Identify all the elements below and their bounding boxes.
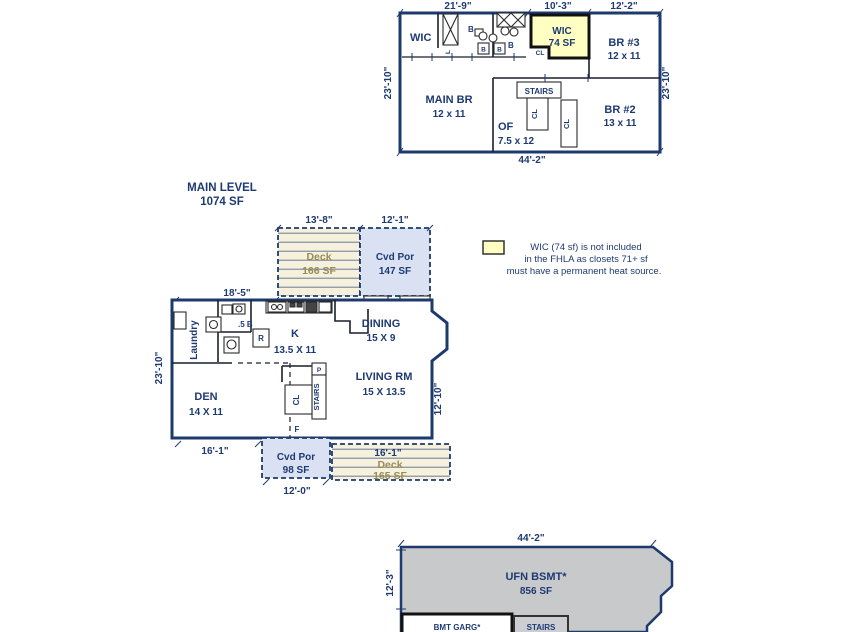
dining-name: DINING	[362, 318, 401, 330]
br3-dim: 12 x 11	[608, 51, 641, 62]
den-name: DEN	[194, 391, 217, 403]
linen-closet-label: L	[445, 50, 452, 54]
main-level-title-text: MAIN LEVEL	[187, 182, 257, 194]
upper-hall-cl-label: CL	[562, 119, 571, 129]
cvd-por-top-name: Cvd Por	[376, 252, 414, 263]
dining-dim: 15 X 9	[367, 333, 396, 344]
upper-wic-hall-label: WIC	[410, 32, 431, 44]
bsmt-garage-label: BMT GARG*	[434, 623, 482, 632]
br2-dim: 13 x 11	[604, 118, 637, 129]
dim-main-left: 23'-10"	[154, 351, 165, 384]
upper-dim-top-mid: 10'-3"	[544, 1, 571, 12]
main-br-dim: 12 x 11	[433, 109, 466, 120]
bsmt-dim-top: 44'-2"	[517, 533, 544, 544]
bsmt-dim-left: 12'-3"	[385, 569, 396, 596]
dim-deck-top: 13'-8"	[305, 215, 332, 226]
deck-top-name: Deck	[306, 251, 331, 263]
upper-dim-right: 23'-10"	[661, 66, 672, 99]
kitchen-name: K	[291, 328, 299, 340]
main-level-title-sf: 1074 SF	[200, 196, 243, 208]
upper-dim-top-left: 21'-9"	[444, 1, 471, 12]
of-name: OF	[498, 121, 514, 133]
dim-16-1-deck: 16'-1"	[374, 448, 401, 459]
furnace-label: F	[295, 425, 300, 434]
fridge-label: R	[258, 334, 264, 343]
floor-plan-svg: 21'-9" 10'-3" 12'-2" 23'-10" 23'-10" 44'…	[0, 0, 843, 632]
living-dim: 15 X 13.5	[363, 387, 406, 398]
upper-stairs-label: STAIRS	[525, 87, 554, 96]
laundry-label: Laundry	[189, 320, 200, 360]
den-dim: 14 X 11	[189, 407, 223, 418]
half-bath-label: .5 B	[238, 320, 253, 329]
dim-cvd-top: 12'-1"	[381, 215, 408, 226]
br3-name: BR #3	[608, 37, 639, 49]
cvd-por-bottom-sf: 98 SF	[283, 465, 310, 476]
deck-bottom-sf: 165 SF	[373, 470, 407, 482]
wic-room-sf: 74 SF	[549, 38, 576, 49]
wic-cl-label: CL	[536, 50, 545, 57]
legend: WIC (74 sf) is not included in the FHLA …	[483, 241, 661, 277]
main-br-name: MAIN BR	[425, 94, 472, 106]
of-dim: 7.5 x 12	[498, 136, 535, 147]
main-level-plan: Deck 166 SF Cvd Por 147 SF 13'-8" 12'-1"…	[154, 215, 450, 497]
legend-line-1: WIC (74 sf) is not included	[530, 242, 641, 253]
wic-room-name: WIC	[552, 26, 571, 37]
main-cl-label: CL	[292, 395, 301, 406]
bsmt-name: UFN BSMT*	[505, 571, 567, 583]
kitchen-dim: 13.5 X 11	[274, 345, 317, 356]
deck-top-sf: 166 SF	[302, 265, 336, 277]
floor-plan-page: 21'-9" 10'-3" 12'-2" 23'-10" 23'-10" 44'…	[0, 0, 843, 632]
legend-line-2: in the FHLA as closets 71+ sf	[524, 254, 648, 265]
living-name: LIVING RM	[356, 371, 413, 383]
main-stairs-label: STAIRS	[312, 384, 321, 411]
dim-12-0: 12'-0"	[283, 486, 310, 497]
bsmt-stairs-label: STAIRS	[527, 623, 556, 632]
upper-dim-bottom: 44'-2"	[518, 155, 545, 166]
cvd-por-top-sf: 147 SF	[379, 266, 411, 277]
br2-name: BR #2	[604, 104, 635, 116]
b-label-small: B	[508, 41, 514, 50]
legend-line-3: must have a permanent heat source.	[507, 266, 662, 277]
basement-plan: 44'-2" 12'-3" UFN BSMT* 856 SF BMT GARG*…	[385, 533, 672, 632]
legend-swatch	[483, 241, 504, 254]
b-label-sq2: B	[497, 47, 502, 54]
dim-18-5: 18'-5"	[223, 288, 250, 299]
bsmt-sf: 856 SF	[520, 586, 552, 597]
dim-16-1-left: 16'-1"	[201, 446, 228, 457]
upper-dim-left: 23'-10"	[383, 66, 394, 99]
b-label-sq1: B	[481, 47, 486, 54]
main-level-title: MAIN LEVEL 1074 SF	[187, 182, 257, 208]
cvd-por-bottom-name: Cvd Por	[277, 452, 315, 463]
upper-level-plan: 21'-9" 10'-3" 12'-2" 23'-10" 23'-10" 44'…	[383, 1, 672, 166]
upper-dim-top-right: 12'-2"	[610, 1, 637, 12]
wic-74sf-room: WIC 74 SF CL	[531, 15, 589, 58]
upper-stairs-cl-label: CL	[530, 109, 539, 119]
upper-hall-closet	[497, 13, 525, 27]
pantry-label: P	[317, 367, 322, 374]
b-label-main: B	[468, 25, 474, 34]
dim-main-right: 12'-10"	[433, 382, 444, 415]
